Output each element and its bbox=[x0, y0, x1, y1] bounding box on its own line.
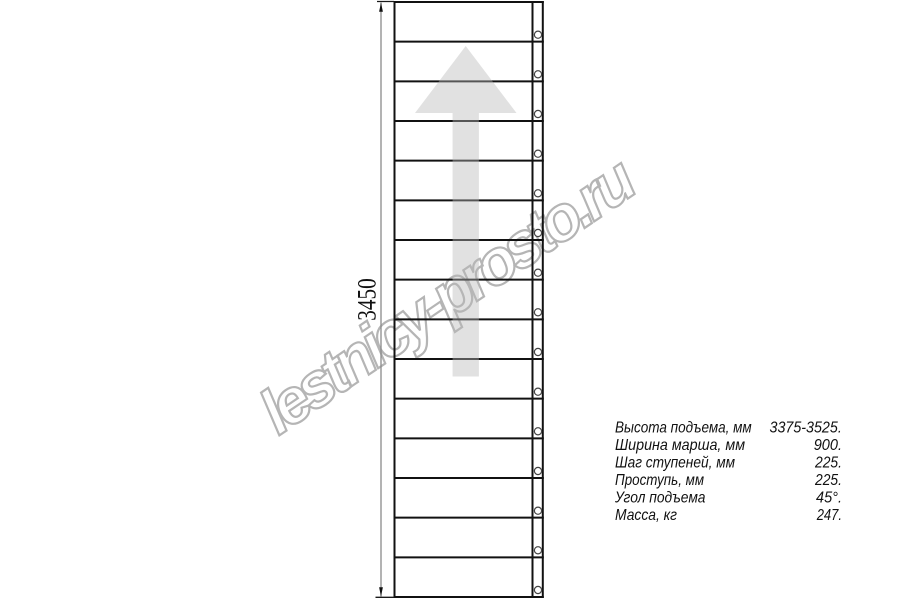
svg-text:Масса, кг: Масса, кг bbox=[615, 507, 677, 524]
svg-text:Проступь, мм: Проступь, мм bbox=[615, 472, 704, 489]
svg-text:Угол подъема: Угол подъема bbox=[614, 489, 705, 506]
svg-text:Шаг ступеней, мм: Шаг ступеней, мм bbox=[615, 454, 735, 471]
svg-text:3450: 3450 bbox=[353, 278, 382, 321]
svg-text:247.: 247. bbox=[816, 507, 842, 524]
svg-text:3375-3525.: 3375-3525. bbox=[770, 419, 842, 436]
svg-text:225.: 225. bbox=[814, 454, 842, 471]
svg-text:Высота подъема, мм: Высота подъема, мм bbox=[615, 419, 752, 436]
svg-text:45°.: 45°. bbox=[816, 489, 842, 506]
svg-text:900.: 900. bbox=[814, 437, 842, 454]
svg-text:lestnicy-prosto.ru: lestnicy-prosto.ru bbox=[247, 143, 649, 447]
svg-text:Ширина марша, мм: Ширина марша, мм bbox=[615, 437, 745, 454]
svg-text:225.: 225. bbox=[814, 472, 842, 489]
